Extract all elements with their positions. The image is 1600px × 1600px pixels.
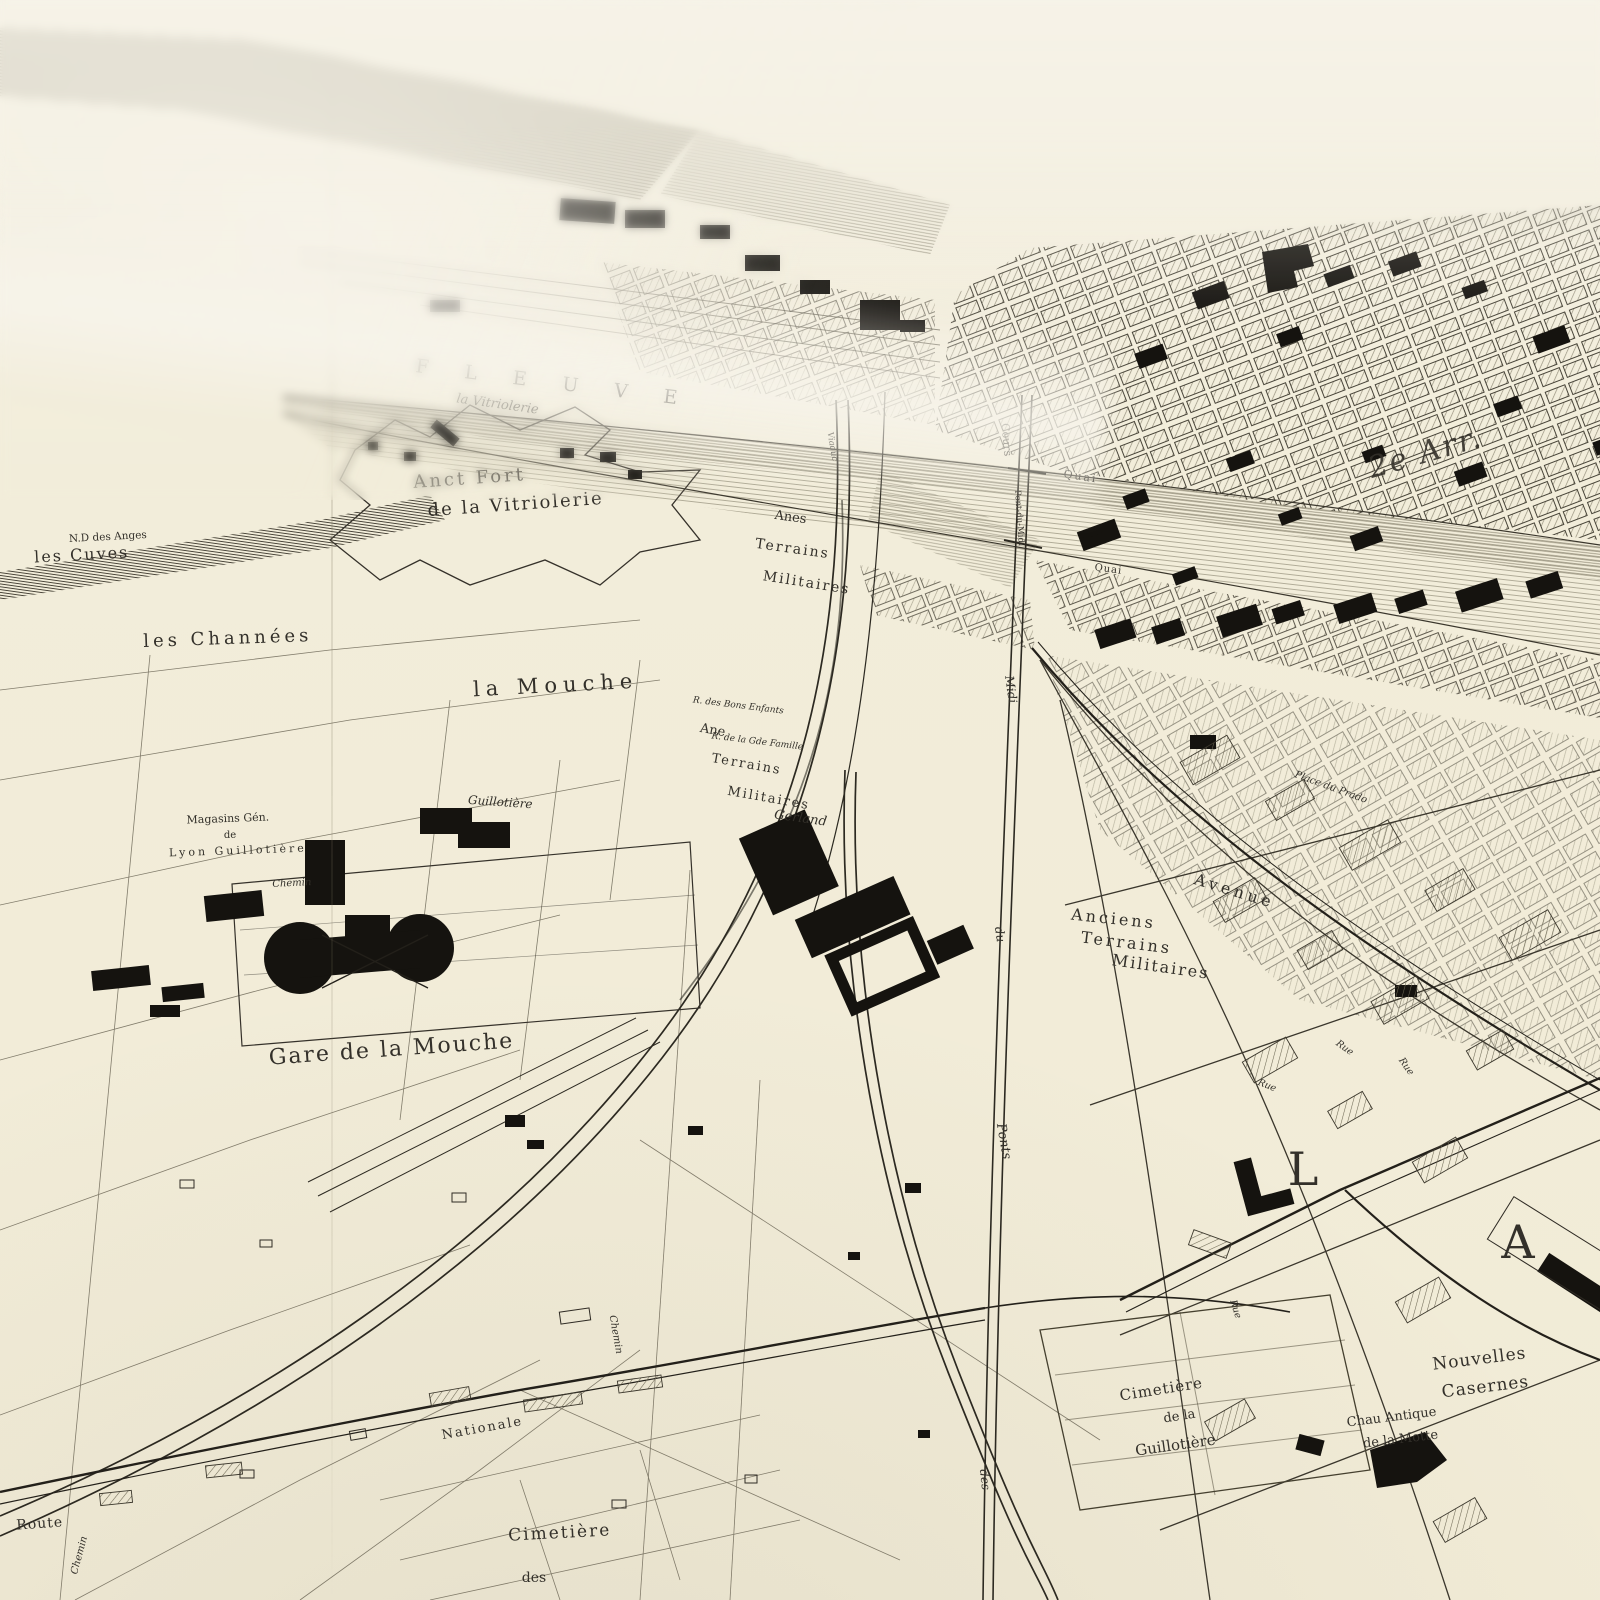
label-casernes: Casernes — [1441, 1372, 1531, 1403]
label-district-letter-l: L — [1288, 1142, 1319, 1196]
label-rue-c: Rue — [1396, 1055, 1417, 1078]
label-bons-enfants: R. des Bons Enfants — [691, 695, 784, 716]
label-cours: Cours — [999, 423, 1015, 457]
label-ponts: Ponts — [993, 1121, 1014, 1161]
label-magasins-1: Magasins Gén. — [186, 811, 269, 827]
vintage-map-canvas: F L E U V E la Vitriolerie Anct Fort de … — [0, 0, 1600, 1600]
label-fort-2: de la Vitriolerie — [427, 488, 604, 521]
label-chateau-1: Chau Antique — [1346, 1405, 1438, 1431]
label-chemin-b: Chemin — [69, 1535, 90, 1576]
label-nouvelles: Nouvelles — [1431, 1343, 1527, 1374]
label-nationale: Nationale — [441, 1414, 525, 1443]
label-cimetiere-g-2: de la — [1162, 1407, 1196, 1427]
label-anes-1: Anes — [773, 508, 808, 527]
label-midi: Midi — [1002, 674, 1020, 704]
cemetery-guillotiere — [1040, 1295, 1370, 1510]
road-route-nationale — [0, 1296, 1290, 1504]
field-lines — [0, 620, 1100, 1600]
label-militaires-2: Militaires — [726, 784, 811, 813]
label-chemin-a: Chemin — [272, 877, 312, 890]
label-cimetiere-south-1: Cimetière — [508, 1520, 612, 1545]
label-militaires-1: Militaires — [762, 568, 852, 598]
label-magasins-3: Lyon Guillotière — [169, 842, 307, 860]
label-district-letter-a: A — [1500, 1215, 1535, 1269]
label-gde-famille: R. de la Gde Famille — [710, 731, 804, 752]
label-des: des — [977, 1468, 993, 1490]
gare-mouche-yard — [91, 842, 700, 1046]
label-rue-b: Rue — [1333, 1037, 1356, 1058]
label-cimetiere-g-3: Guillotière — [1134, 1430, 1217, 1459]
label-rue-d: Rue — [1227, 1298, 1244, 1321]
map-svg: F L E U V E la Vitriolerie Anct Fort de … — [0, 0, 1600, 1600]
label-fort-1: Anct Fort — [412, 464, 527, 493]
label-du: du — [992, 926, 1008, 943]
label-terrains-2: Terrains — [710, 751, 782, 778]
label-chemin-c: Chemin — [607, 1314, 625, 1354]
label-cimetiere-south-2: des — [522, 1570, 546, 1586]
label-rue-a: Rue — [1255, 1077, 1278, 1095]
label-guillotiere-street: Guillotière — [468, 793, 533, 811]
label-cimetiere-g-1: Cimetière — [1118, 1374, 1204, 1405]
label-magasins-2: de — [224, 830, 236, 841]
label-route: Route — [16, 1514, 64, 1533]
label-mouche: la Mouche — [472, 669, 638, 702]
label-terrains-1: Terrains — [754, 536, 830, 562]
label-channees: les Channées — [143, 625, 313, 652]
label-nd-anges: N.D des Anges — [69, 529, 147, 545]
